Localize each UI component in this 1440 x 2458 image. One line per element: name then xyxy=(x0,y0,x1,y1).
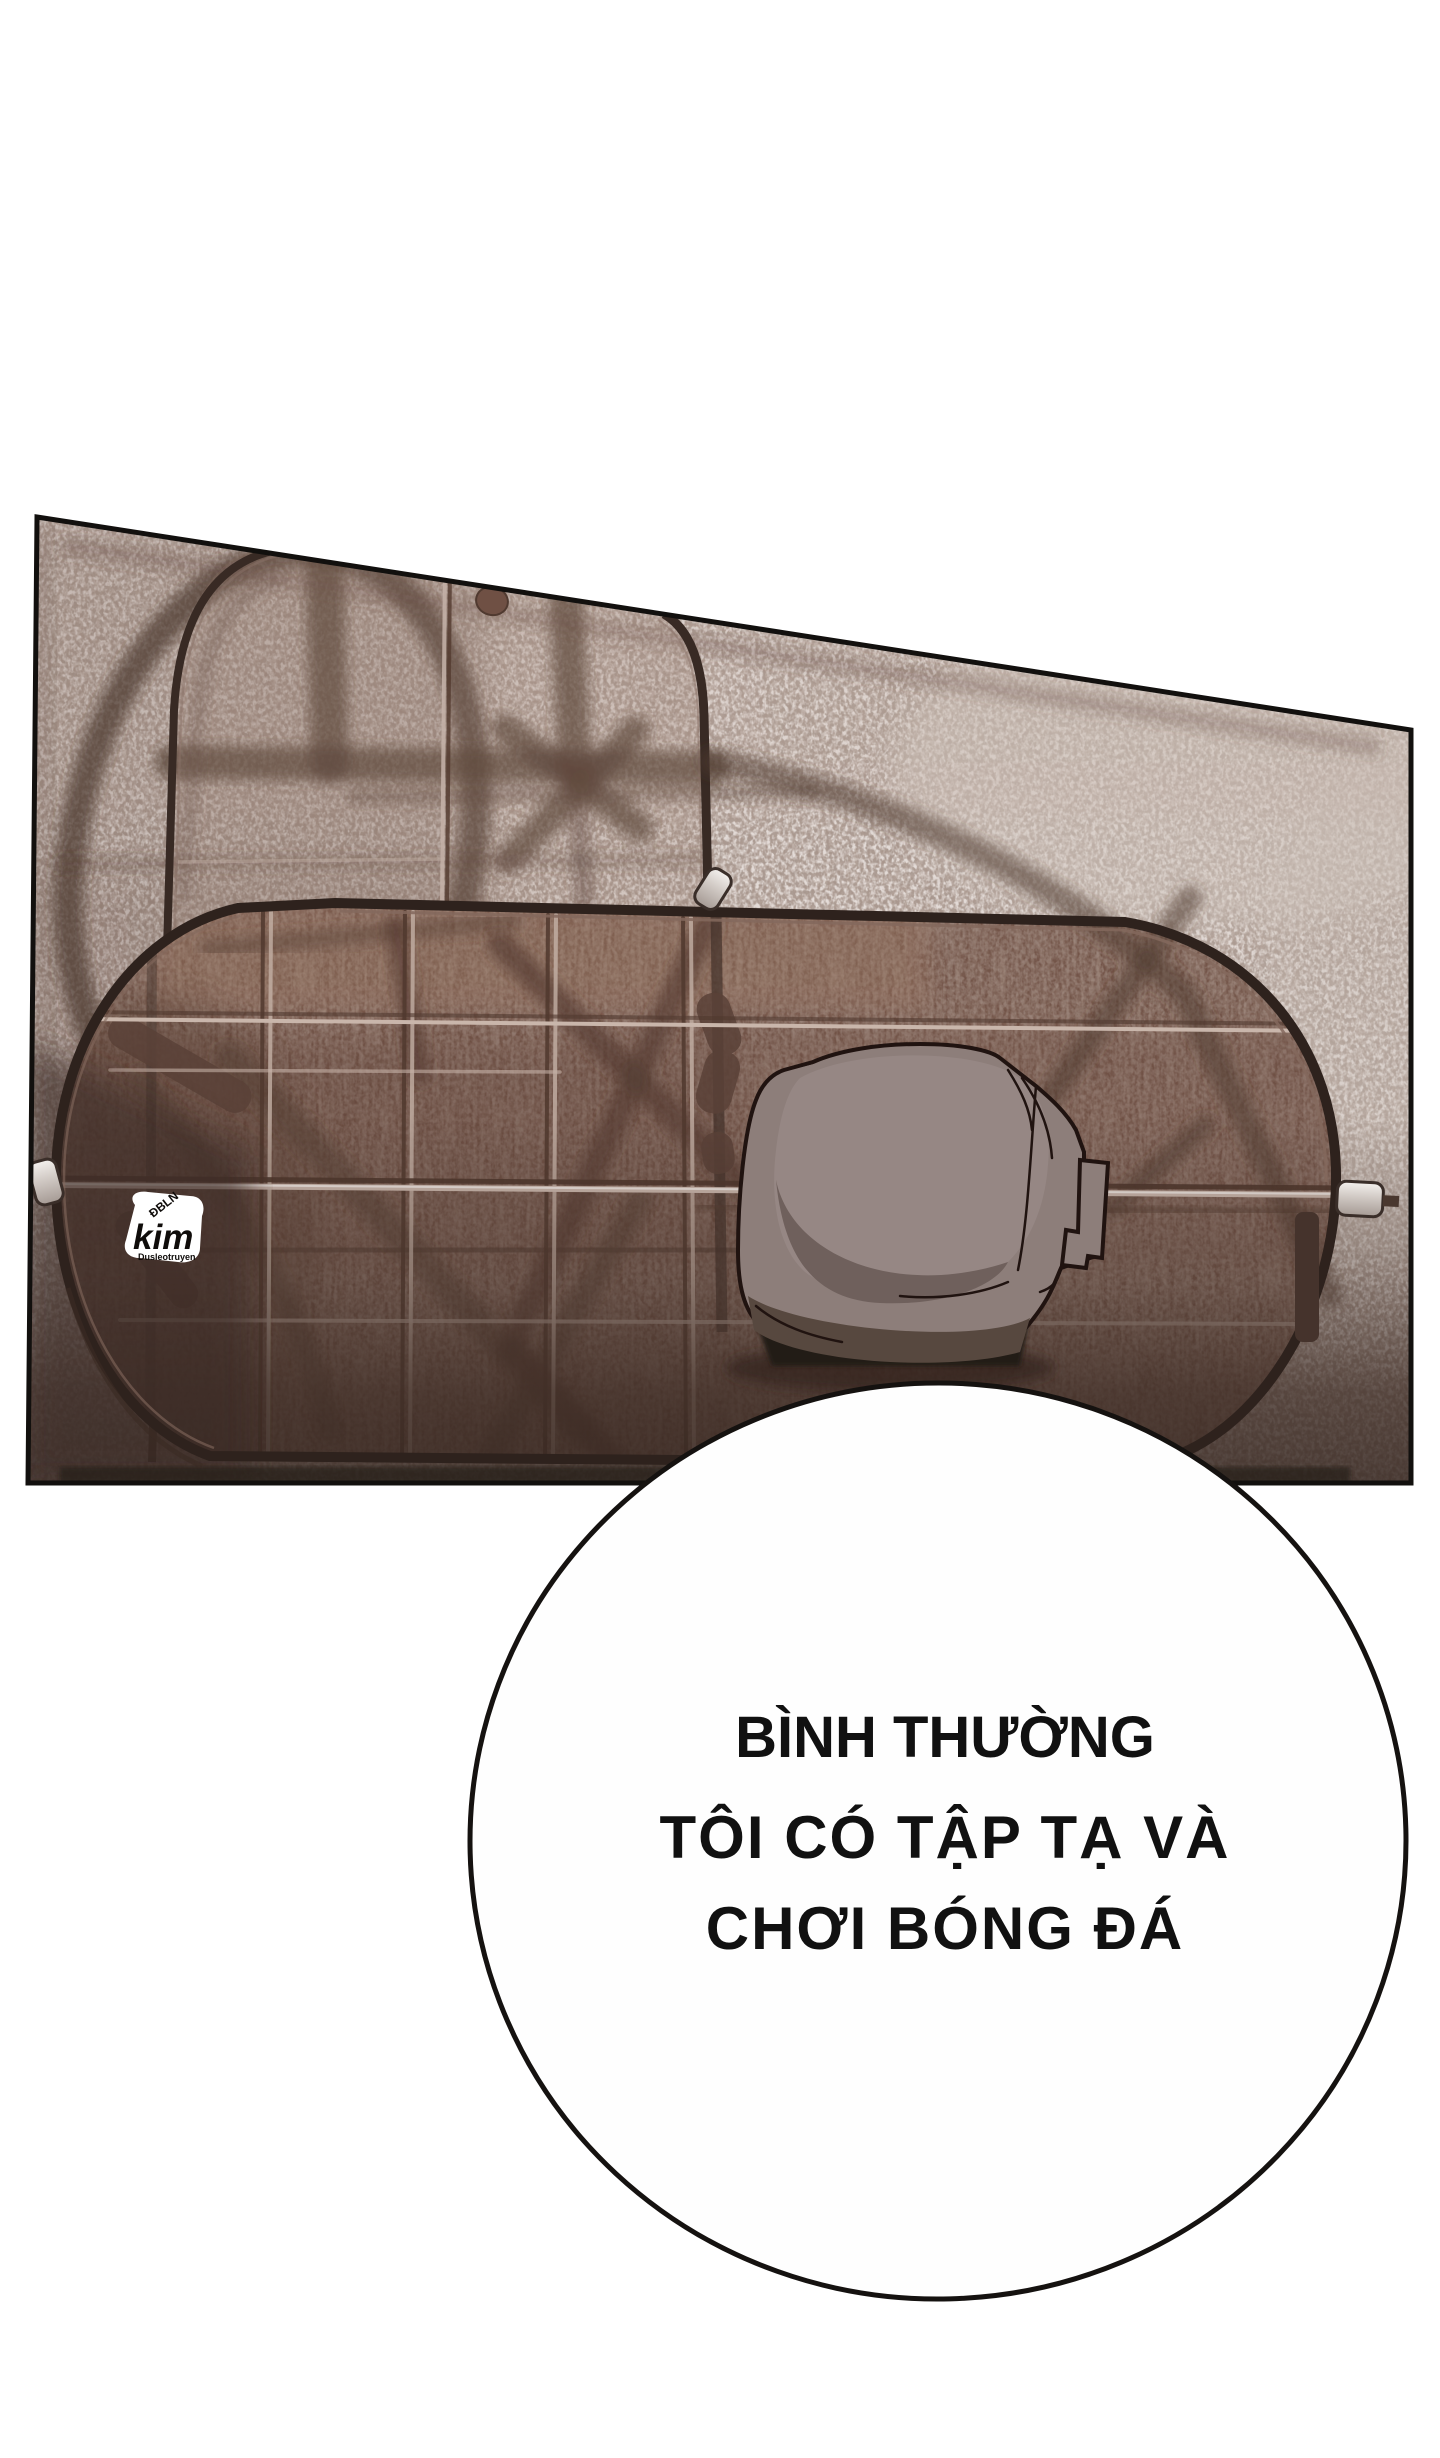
svg-text:TÔI CÓ TẬP TẠ VÀ: TÔI CÓ TẬP TẠ VÀ xyxy=(660,1804,1231,1871)
svg-text:CHƠI BÓNG ĐÁ: CHƠI BÓNG ĐÁ xyxy=(706,1895,1185,1962)
svg-text:Dusleotruyen: Dusleotruyen xyxy=(138,1252,196,1262)
svg-text:BÌNH THƯỜNG: BÌNH THƯỜNG xyxy=(735,1705,1155,1770)
